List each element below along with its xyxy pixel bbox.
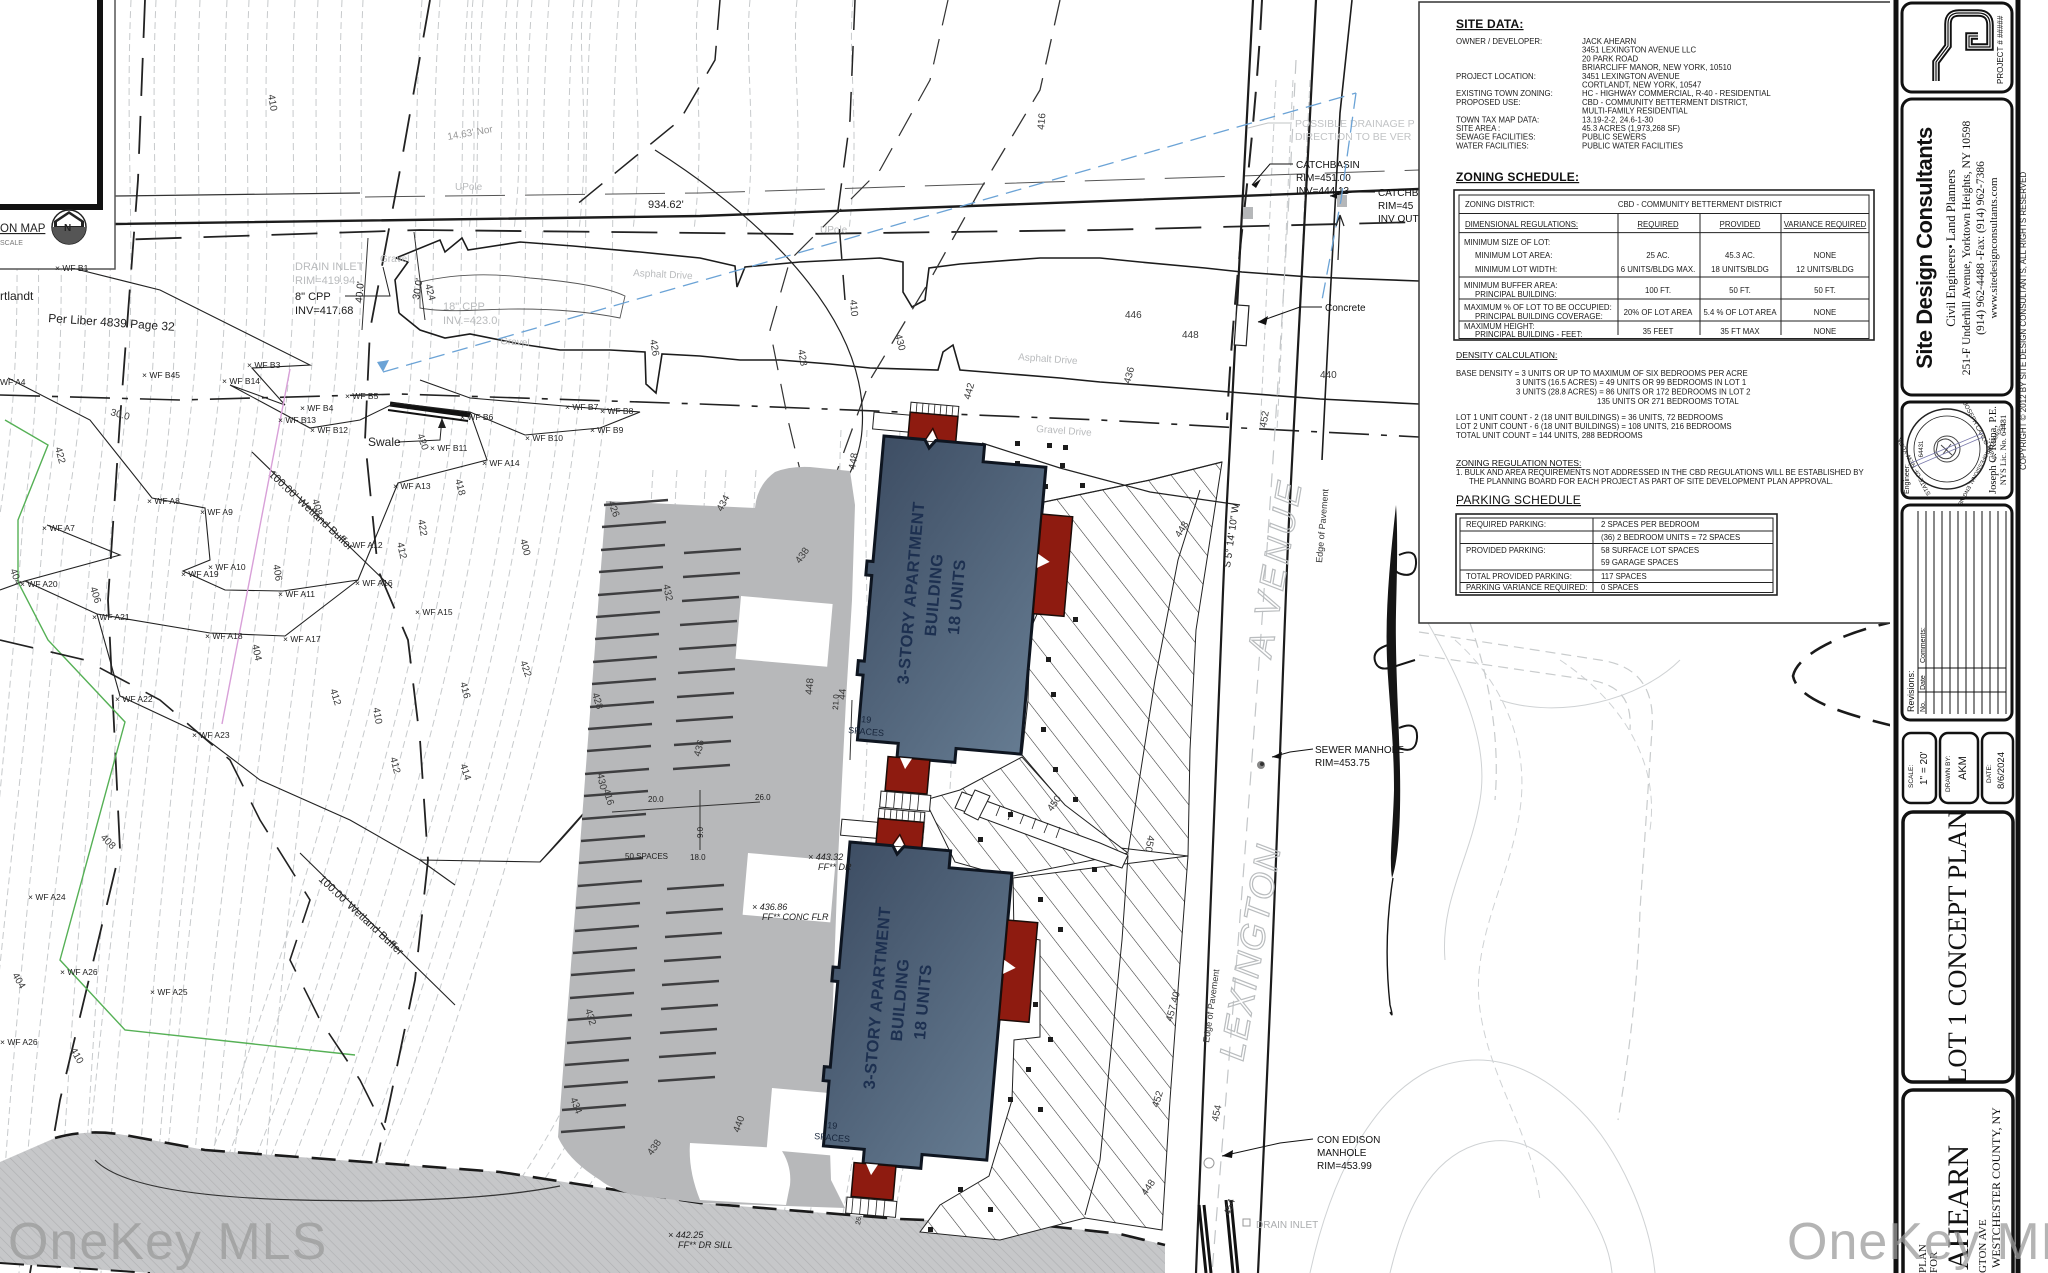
svg-text:Gravel: Gravel: [500, 336, 530, 349]
svg-text:PRINCIPAL BUILDING:: PRINCIPAL BUILDING:: [1475, 290, 1556, 299]
svg-text:× WF B4: × WF B4: [300, 403, 334, 413]
svg-text:Swale: Swale: [368, 435, 401, 449]
svg-text:MAXIMUM % OF LOT TO BE OCCUPIE: MAXIMUM % OF LOT TO BE OCCUPIED:: [1464, 303, 1612, 312]
svg-text:9.0: 9.0: [696, 826, 705, 838]
svg-text:(914) 962-4488 -Fax: (914) 962: (914) 962-4488 -Fax: (914) 962-7386: [1975, 161, 1987, 335]
svg-text:× WF A8: × WF A8: [147, 496, 180, 506]
svg-text:REQUIRED: REQUIRED: [1637, 220, 1679, 229]
svg-text:50 FT.: 50 FT.: [1729, 286, 1751, 295]
svg-text:JACK AHEARN: JACK AHEARN: [1582, 37, 1636, 46]
svg-text:× 443.32: × 443.32: [808, 852, 843, 862]
svg-text:SCALE: SCALE: [0, 240, 23, 247]
svg-text:OneKey MLS: OneKey MLS: [8, 1213, 327, 1271]
svg-text:13.19-2-2, 24.6-1-30: 13.19-2-2, 24.6-1-30: [1582, 115, 1654, 124]
svg-text:50 SPACES: 50 SPACES: [625, 852, 668, 861]
svg-text:20 PARK ROAD: 20 PARK ROAD: [1582, 54, 1639, 63]
svg-text:MINIMUM SIZE OF LOT:: MINIMUM SIZE OF LOT:: [1464, 238, 1550, 247]
svg-text:SITE DATA:: SITE DATA:: [1456, 17, 1524, 31]
svg-text:DENSITY CALCULATION:: DENSITY CALCULATION:: [1456, 350, 1557, 360]
svg-text:448: 448: [1182, 330, 1199, 341]
svg-text:UPole: UPole: [455, 182, 483, 193]
svg-text:2 SPACES PER BEDROOM: 2 SPACES PER BEDROOM: [1601, 520, 1699, 529]
svg-text:50 FT.: 50 FT.: [1814, 286, 1836, 295]
svg-text:MINIMUM LOT WIDTH:: MINIMUM LOT WIDTH:: [1475, 265, 1557, 274]
svg-text:0 SPACES: 0 SPACES: [1601, 583, 1639, 592]
svg-text:CATCHBASIN: CATCHBASIN: [1296, 160, 1360, 171]
svg-text:251-F Underhill Avenue, Yorkt: 251-F Underhill Avenue, Yorktown Heights…: [1961, 120, 1973, 375]
svg-text:12 UNITS/BLDG: 12 UNITS/BLDG: [1796, 265, 1854, 274]
svg-text:OneKey MLS: OneKey MLS: [1787, 1213, 2048, 1271]
svg-text:FF** DR SILL: FF** DR SILL: [678, 1240, 733, 1250]
svg-text:PRINCIPAL BUILDING COVERAGE:: PRINCIPAL BUILDING COVERAGE:: [1475, 312, 1603, 321]
svg-text:OWNER / DEVELOPER:: OWNER / DEVELOPER:: [1456, 37, 1542, 46]
svg-text:PROVIDED PARKING:: PROVIDED PARKING:: [1466, 546, 1546, 555]
svg-text:INV=417.68: INV=417.68: [295, 305, 353, 317]
svg-text:× WF A19: × WF A19: [181, 569, 219, 579]
svg-text:MINIMUM BUFFER AREA:: MINIMUM BUFFER AREA:: [1464, 281, 1558, 290]
svg-text:25 AC.: 25 AC.: [1646, 251, 1669, 260]
svg-text:POSSIBLE DRAINAGE P: POSSIBLE DRAINAGE P: [1295, 118, 1415, 130]
svg-text:× WF A15: × WF A15: [415, 607, 453, 617]
svg-text:64431: 64431: [1919, 440, 1925, 457]
svg-text:RIM=419.94: RIM=419.94: [295, 275, 355, 287]
svg-text:× WF B13: × WF B13: [278, 415, 316, 425]
svg-text:WATER FACILITIES:: WATER FACILITIES:: [1456, 141, 1529, 150]
svg-text:448: 448: [804, 677, 816, 695]
svg-text:× WF A14: × WF A14: [482, 458, 520, 468]
svg-text:NONE: NONE: [1814, 327, 1837, 336]
svg-text:440: 440: [1320, 370, 1337, 381]
svg-text:× WF A9: × WF A9: [200, 507, 233, 517]
svg-text:ZONING SCHEDULE:: ZONING SCHEDULE:: [1456, 170, 1579, 184]
svg-text:DATE:: DATE:: [1986, 764, 1993, 783]
svg-text:NYS Lic. No. 64431: NYS Lic. No. 64431: [1998, 415, 2008, 486]
svg-text:117 SPACES: 117 SPACES: [1601, 572, 1647, 581]
svg-text:NONE: NONE: [1814, 308, 1837, 317]
svg-text:PUBLIC WATER FACILITIES: PUBLIC WATER FACILITIES: [1582, 141, 1683, 150]
svg-text:RIM=451.00: RIM=451.00: [1296, 173, 1351, 184]
svg-text:Site Design Consultants: Site Design Consultants: [1912, 127, 1937, 369]
svg-text:AKM: AKM: [1957, 756, 1969, 780]
svg-text:× WF B14: × WF B14: [222, 376, 260, 386]
svg-text:45.3 ACRES (1,973,268 SF): 45.3 ACRES (1,973,268 SF): [1582, 124, 1680, 133]
svg-text:18" CPP: 18" CPP: [443, 301, 485, 313]
svg-text:www.sitedesignconsultants.com: www.sitedesignconsultants.com: [1988, 177, 2000, 318]
svg-text:CBD - COMMUNITY BETTERMENT DIS: CBD - COMMUNITY BETTERMENT DISTRICT,: [1582, 98, 1748, 107]
svg-text:19: 19: [861, 714, 872, 725]
svg-text:20% OF LOT AREA: 20% OF LOT AREA: [1624, 308, 1694, 317]
svg-text:EXISTING TOWN ZONING:: EXISTING TOWN ZONING:: [1456, 89, 1553, 98]
svg-text:× 436.86: × 436.86: [752, 902, 787, 912]
svg-text:× WF A22: × WF A22: [115, 694, 153, 704]
svg-text:SITE AREA :: SITE AREA :: [1456, 124, 1500, 133]
svg-text:DIRECTION TO BE VER: DIRECTION TO BE VER: [1295, 131, 1412, 143]
svg-text:CBD - COMMUNITY BETTERMENT DIS: CBD - COMMUNITY BETTERMENT DISTRICT: [1618, 200, 1783, 209]
svg-text:MULTI-FAMILY RESIDENTIAL: MULTI-FAMILY RESIDENTIAL: [1582, 107, 1688, 116]
svg-text:× WF B11: × WF B11: [430, 443, 468, 453]
svg-text:WF A4: WF A4: [0, 377, 26, 387]
svg-text:× WF B45: × WF B45: [142, 370, 180, 380]
svg-text:× WF B5: × WF B5: [345, 391, 379, 401]
svg-text:3 UNITS (28.8 ACRES) = 86 UNIT: 3 UNITS (28.8 ACRES) = 86 UNITS OR 172 B…: [1516, 388, 1751, 397]
svg-text:INV OUT: INV OUT: [1378, 214, 1419, 225]
svg-text:× WF A26: × WF A26: [60, 967, 98, 977]
svg-text:Revisions:: Revisions:: [1906, 670, 1916, 712]
svg-text:REQUIRED PARKING:: REQUIRED PARKING:: [1466, 520, 1546, 529]
svg-text:446: 446: [1125, 310, 1142, 321]
svg-text:35 FEET: 35 FEET: [1643, 327, 1674, 336]
svg-text:UPole: UPole: [820, 225, 848, 236]
svg-text:LOT 1 UNIT COUNT - 2 (18 UNIT: LOT 1 UNIT COUNT - 2 (18 UNIT BUILDINGS)…: [1456, 413, 1723, 422]
svg-text:44: 44: [837, 688, 849, 700]
svg-text:PRINCIPAL BUILDING - FEET:: PRINCIPAL BUILDING - FEET:: [1475, 330, 1582, 339]
svg-text:TOTAL PROVIDED PARKING:: TOTAL PROVIDED PARKING:: [1466, 572, 1572, 581]
svg-text:20.0: 20.0: [648, 795, 664, 804]
svg-text:TOTAL UNIT COUNT = 144 UNITS,: TOTAL UNIT COUNT = 144 UNITS, 288 BEDROO…: [1456, 431, 1643, 440]
svg-text:SEWER MANHOLE: SEWER MANHOLE: [1315, 745, 1404, 756]
svg-text:CORTLANDT, NEW YORK, 10547: CORTLANDT, NEW YORK, 10547: [1582, 81, 1701, 90]
svg-text:× WF B9: × WF B9: [590, 425, 624, 435]
svg-text:18 UNITS/BLDG: 18 UNITS/BLDG: [1711, 265, 1769, 274]
svg-text:SCALE:: SCALE:: [1908, 765, 1915, 788]
svg-text:3451 LEXINGTON AVENUE LLC: 3451 LEXINGTON AVENUE LLC: [1582, 46, 1696, 55]
svg-text:DRAIN INLET: DRAIN INLET: [295, 261, 364, 273]
svg-text:RIM=45: RIM=45: [1378, 201, 1414, 212]
svg-text:INV.=423.0: INV.=423.0: [443, 315, 497, 327]
svg-text:ON MAP: ON MAP: [0, 223, 46, 235]
svg-text:934.62': 934.62': [648, 199, 684, 211]
svg-text:HC - HIGHWAY COMMERCIAL, R-40: HC - HIGHWAY COMMERCIAL, R-40 - RESIDENT…: [1582, 89, 1771, 98]
svg-text:× WF B3: × WF B3: [247, 360, 281, 370]
svg-text:× WF A7: × WF A7: [42, 523, 75, 533]
svg-text:18.0: 18.0: [690, 853, 706, 862]
svg-text:× WF A16: × WF A16: [355, 578, 393, 588]
svg-text:135 UNITS OR 271 BEDROOMS TOTA: 135 UNITS OR 271 BEDROOMS TOTAL: [1597, 397, 1739, 406]
svg-text:× WF B6: × WF B6: [460, 412, 494, 422]
svg-text:× WF B7: × WF B7: [565, 402, 599, 412]
svg-text:× WF A21: × WF A21: [92, 612, 130, 622]
svg-text:× WF A13: × WF A13: [393, 481, 431, 491]
svg-text:BRIARCLIFF MANOR, NEW YORK, 10: BRIARCLIFF MANOR, NEW YORK, 10510: [1582, 63, 1732, 72]
svg-text:PARKING SCHEDULE: PARKING SCHEDULE: [1456, 493, 1581, 507]
svg-text:× WF B8: × WF B8: [600, 406, 634, 416]
svg-text:FF** CONC FLR: FF** CONC FLR: [762, 912, 829, 922]
svg-text:410: 410: [847, 299, 859, 317]
svg-text:× WF B10: × WF B10: [525, 433, 563, 443]
svg-text:rtlandt: rtlandt: [0, 289, 34, 303]
svg-text:8/6/2024: 8/6/2024: [1996, 752, 2007, 789]
svg-text:VARIANCE REQUIRED: VARIANCE REQUIRED: [1784, 220, 1867, 229]
svg-text:26.0: 26.0: [755, 793, 771, 802]
svg-text:× WF B1: × WF B1: [55, 263, 89, 273]
svg-text:416: 416: [1036, 112, 1048, 130]
svg-text:Engineer:: Engineer:: [1904, 464, 1911, 494]
svg-text:COPYRIGHT © 2012 BY SITE DESIG: COPYRIGHT © 2012 BY SITE DESIGN CONSULTA…: [2019, 172, 2028, 470]
svg-text:5.4 % OF LOT AREA: 5.4 % OF LOT AREA: [1703, 308, 1777, 317]
svg-text:× WF A12: × WF A12: [345, 540, 383, 550]
svg-text:× WF A11: × WF A11: [278, 589, 315, 599]
svg-text:PARKING VARIANCE REQUIRED:: PARKING VARIANCE REQUIRED:: [1466, 583, 1587, 592]
svg-text:× WF A20: × WF A20: [20, 579, 58, 589]
svg-text:× 442.25: × 442.25: [668, 1230, 704, 1240]
svg-text:MINIMUM LOT AREA:: MINIMUM LOT AREA:: [1475, 251, 1552, 260]
svg-text:TOWN TAX MAP DATA:: TOWN TAX MAP DATA:: [1456, 115, 1539, 124]
svg-text:MANHOLE: MANHOLE: [1317, 1148, 1367, 1159]
svg-text:8" CPP: 8" CPP: [295, 291, 331, 303]
svg-text:59 GARAGE SPACES: 59 GARAGE SPACES: [1601, 558, 1678, 567]
svg-text:3451 LEXINGTON AVENUE: 3451 LEXINGTON AVENUE: [1582, 72, 1680, 81]
svg-text:LOT 1 CONCEPT PLAN: LOT 1 CONCEPT PLAN: [1942, 810, 1972, 1084]
svg-text:CATCHB: CATCHB: [1378, 188, 1419, 199]
svg-text:CON EDISON: CON EDISON: [1317, 1135, 1380, 1146]
svg-text:PROJECT LOCATION:: PROJECT LOCATION:: [1456, 72, 1536, 81]
svg-text:Concrete: Concrete: [1325, 303, 1366, 314]
svg-text:35 FT MAX: 35 FT MAX: [1720, 327, 1760, 336]
svg-text:19: 19: [827, 1120, 838, 1131]
svg-text:× WF A26: × WF A26: [0, 1037, 38, 1047]
svg-text:× WF B12: × WF B12: [310, 425, 348, 435]
svg-text:SEWAGE FACILITIES:: SEWAGE FACILITIES:: [1456, 133, 1535, 142]
svg-text:Gravel: Gravel: [380, 254, 409, 265]
svg-text:× WF A25: × WF A25: [150, 987, 188, 997]
svg-text:45.3 AC.: 45.3 AC.: [1725, 251, 1755, 260]
svg-text:1. BULK AND AREA REQUIREMENTS: 1. BULK AND AREA REQUIREMENTS NOT ADDRES…: [1456, 468, 1865, 477]
svg-text:THE PLANNING BOARD FOR EACH PR: THE PLANNING BOARD FOR EACH PROJECT AS P…: [1469, 477, 1833, 486]
svg-text:NONE: NONE: [1814, 251, 1837, 260]
svg-text:1" = 20': 1" = 20': [1919, 751, 1930, 785]
svg-text:3 UNITS (16.5 ACRES) = 49 UNIT: 3 UNITS (16.5 ACRES) = 49 UNITS OR 99 BE…: [1516, 378, 1746, 387]
svg-text:× WF A23: × WF A23: [192, 730, 230, 740]
svg-text:ZONING DISTRICT:: ZONING DISTRICT:: [1465, 200, 1535, 209]
svg-text:RIM=453.75: RIM=453.75: [1315, 758, 1370, 769]
svg-text:Civil Engineers• Land Planners: Civil Engineers• Land Planners: [1944, 169, 1958, 327]
svg-text:PROJECT # #####: PROJECT # #####: [1996, 15, 2005, 84]
svg-text:(36) 2 BEDROOM UNITS = 72 SPAC: (36) 2 BEDROOM UNITS = 72 SPACES: [1601, 533, 1740, 542]
svg-text:100 FT.: 100 FT.: [1645, 286, 1671, 295]
svg-text:ZONING REGULATION NOTES:: ZONING REGULATION NOTES:: [1456, 458, 1581, 468]
svg-text:× WF A24: × WF A24: [28, 892, 66, 902]
svg-text:PROVIDED: PROVIDED: [1720, 220, 1761, 229]
svg-text:BASE DENSITY = 3 UNITS OR UP T: BASE DENSITY = 3 UNITS OR UP TO MAXIMUM …: [1456, 369, 1748, 378]
svg-text:DRAIN INLET: DRAIN INLET: [1256, 1220, 1318, 1231]
svg-text:DIMENSIONAL REGULATIONS:: DIMENSIONAL REGULATIONS:: [1465, 220, 1578, 229]
svg-text:DRAWN BY:: DRAWN BY:: [1945, 756, 1952, 792]
svg-text:6 UNITS/BLDG MAX.: 6 UNITS/BLDG MAX.: [1621, 265, 1696, 274]
svg-text:N: N: [64, 223, 71, 234]
svg-text:PROPOSED USE:: PROPOSED USE:: [1456, 98, 1521, 107]
svg-text:PUBLIC SEWERS: PUBLIC SEWERS: [1582, 133, 1646, 142]
svg-text:× WF A17: × WF A17: [283, 634, 321, 644]
svg-text:LOT 2 UNIT COUNT - 6 (18 UNIT: LOT 2 UNIT COUNT - 6 (18 UNIT BUILDINGS)…: [1456, 422, 1732, 431]
svg-text:58 SURFACE LOT SPACES: 58 SURFACE LOT SPACES: [1601, 546, 1699, 555]
svg-text:RIM=453.99: RIM=453.99: [1317, 1161, 1372, 1172]
svg-text:× WF A18: × WF A18: [205, 631, 243, 641]
svg-text:FF** DR: FF** DR: [818, 862, 852, 872]
